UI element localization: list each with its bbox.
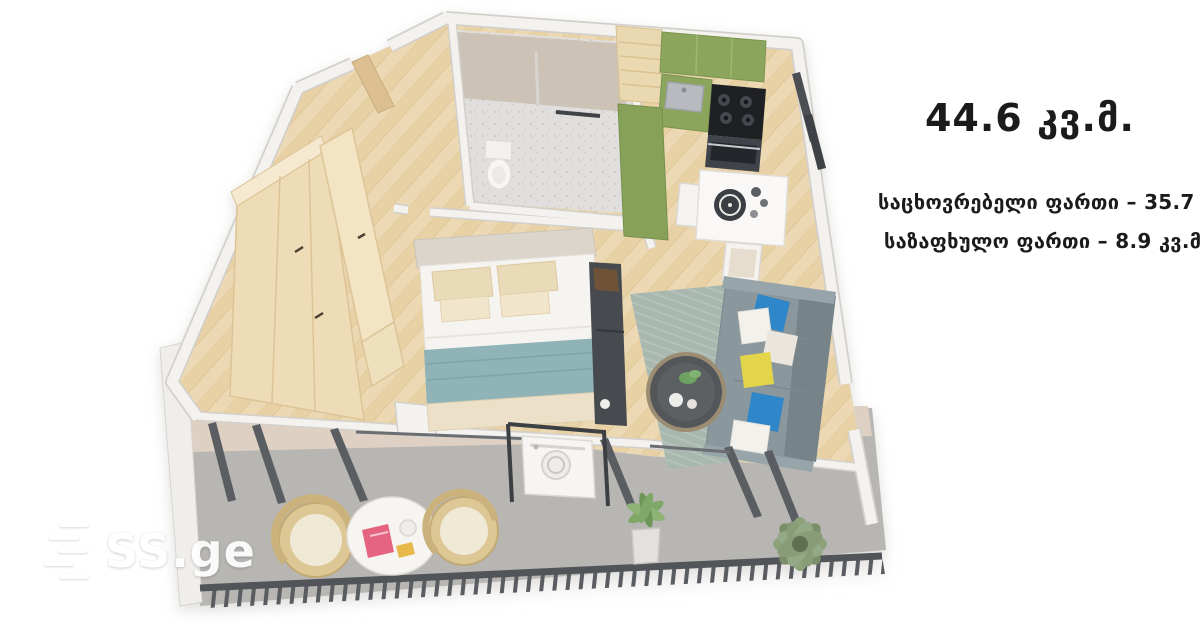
cooktop-oven: [705, 84, 766, 172]
pillow-white: [730, 420, 770, 454]
ss-logo-text: SS.ge: [105, 528, 256, 574]
toilet: [485, 140, 512, 189]
watermark: SS.ge: [44, 522, 256, 579]
wood-tall-cabinet: [616, 26, 667, 104]
summer-area-text: საზაფხულო ფართი – 8.9 კვ.მ.: [884, 229, 1200, 253]
tall-green-cabinet: [618, 104, 668, 240]
coffee-table: [646, 352, 726, 432]
living-area-text: საცხოვრებელი ფართი – 35.7 კვ.მ.: [878, 190, 1200, 214]
large-plant: [773, 517, 827, 571]
shower-pole: [536, 52, 538, 106]
ss-logo-icon: [44, 522, 89, 579]
total-area-title: 44.6 კვ.მ.: [880, 96, 1180, 140]
tv-console: [589, 262, 627, 426]
bed: [414, 228, 603, 431]
sink-cabinet: [658, 74, 712, 132]
screenshot-root: 44.6 კვ.მ. საცხოვრებელი ფართი – 35.7 კვ.…: [0, 0, 1200, 640]
bathroom: [456, 30, 640, 214]
pillow-yellow: [740, 352, 774, 388]
